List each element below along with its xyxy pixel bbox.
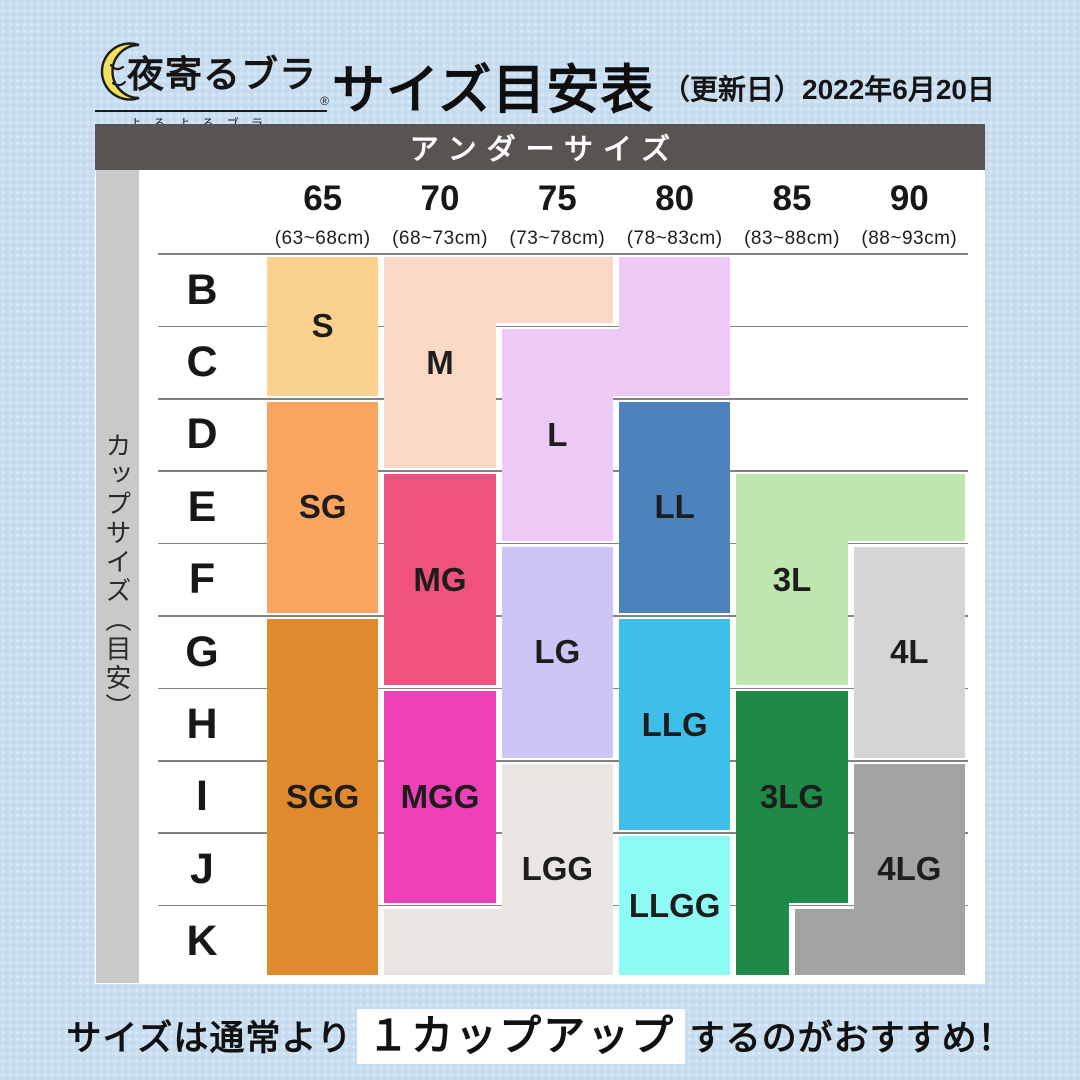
cup-row-label: I xyxy=(140,761,264,833)
size-block-label: M xyxy=(426,344,454,382)
column-header: 85(83~88cm) xyxy=(733,170,850,254)
cup-size-sidebar: カップサイズ（目安） xyxy=(96,170,139,983)
column-size: 80 xyxy=(616,179,733,219)
note-highlight: １カップアップ xyxy=(357,1009,685,1064)
brand-logo-row: 夜寄るブラ ® xyxy=(95,36,327,110)
cup-row-label: H xyxy=(140,688,264,760)
size-block-3L xyxy=(845,474,965,540)
brand-name: 夜寄るブラ xyxy=(127,44,317,98)
size-block-label: 3LG xyxy=(760,778,824,816)
size-block-label: SG xyxy=(299,488,347,526)
page-title: サイズ目安表 xyxy=(332,48,654,124)
size-block-LGG xyxy=(384,909,504,975)
registered-mark: ® xyxy=(320,94,329,108)
cup-row-label: E xyxy=(140,471,264,543)
size-block-3LG xyxy=(736,900,789,975)
column-size: 75 xyxy=(499,179,616,219)
note-prefix: サイズは通常より xyxy=(66,1019,352,1058)
cup-row-label: J xyxy=(140,833,264,905)
column-range: (73~78cm) xyxy=(499,228,616,250)
size-block-label: LLGG xyxy=(629,887,721,925)
size-block-label: MG xyxy=(413,561,466,599)
column-range: (83~88cm) xyxy=(733,228,850,250)
size-block-label: LL xyxy=(654,488,694,526)
cup-row-label: F xyxy=(140,544,264,616)
recommendation-note: サイズは通常より １カップアップ するのがおすすめ！ xyxy=(0,1002,1080,1063)
cup-row-label: B xyxy=(140,254,264,326)
size-block-label: LLG xyxy=(642,706,708,744)
page: { "logo": { "brand": "夜寄るブラ", "star": "★… xyxy=(0,0,1080,1080)
column-range: (68~73cm) xyxy=(381,228,498,250)
size-block-L xyxy=(502,329,731,395)
cup-row-label: D xyxy=(140,399,264,471)
size-block-label: 4LG xyxy=(877,850,941,888)
size-block-label: 3L xyxy=(773,561,812,599)
column-size: 65 xyxy=(264,179,381,219)
cup-row-label: G xyxy=(140,616,264,688)
size-block-label: SGG xyxy=(286,778,359,816)
column-header: 90(88~93cm) xyxy=(851,170,968,254)
size-block-label: S xyxy=(312,307,334,345)
size-chart-card: アンダーサイズ カップサイズ（目安） 65(63~68cm)70(68~73cm… xyxy=(95,124,985,984)
underbust-header-bar: アンダーサイズ xyxy=(95,124,985,170)
size-block-label: L xyxy=(547,416,567,454)
cup-size-sidebar-label: カップサイズ（目安） xyxy=(99,432,136,722)
size-block-label: LG xyxy=(534,633,580,671)
column-size: 85 xyxy=(733,179,850,219)
grid-line xyxy=(158,253,968,255)
size-block-4LG xyxy=(795,909,857,975)
column-header: 80(78~83cm) xyxy=(616,170,733,254)
column-header: 75(73~78cm) xyxy=(499,170,616,254)
cup-row-label: K xyxy=(140,906,264,978)
size-block-label: MGG xyxy=(401,778,480,816)
size-block-label: 4L xyxy=(890,633,929,671)
update-date: （更新日）2022年6月20日 xyxy=(662,68,995,108)
column-header: 70(68~73cm) xyxy=(381,170,498,254)
column-range: (63~68cm) xyxy=(264,228,381,250)
note-suffix: するのがおすすめ！ xyxy=(690,1019,1014,1058)
column-range: (88~93cm) xyxy=(851,228,968,250)
column-range: (78~83cm) xyxy=(616,228,733,250)
size-block-label: LGG xyxy=(522,850,594,888)
column-header: 65(63~68cm) xyxy=(264,170,381,254)
size-block-M xyxy=(493,257,613,323)
column-size: 70 xyxy=(381,179,498,219)
cup-row-label: C xyxy=(140,326,264,398)
brand-logo: 夜寄るブラ ® xyxy=(95,36,327,112)
column-size: 90 xyxy=(851,179,968,219)
